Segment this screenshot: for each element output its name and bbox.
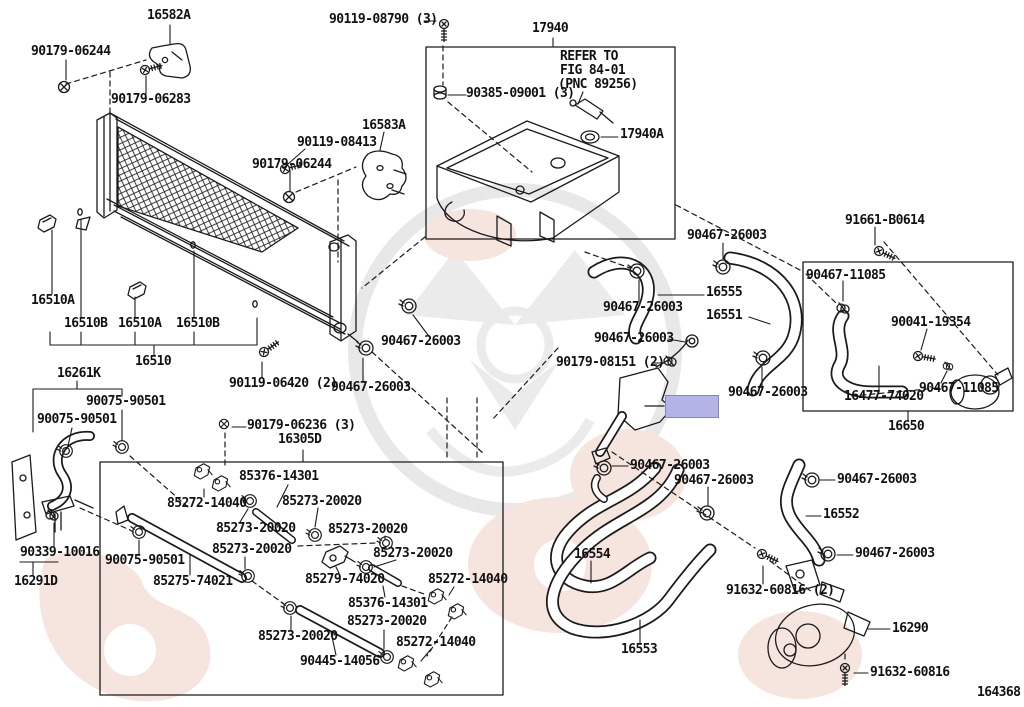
part-label[interactable]: 16510B [176, 318, 219, 330]
part-label[interactable]: 90385-09001 (3) [466, 88, 574, 100]
bolt-icon [440, 20, 449, 42]
hose-clamp-icon [113, 441, 128, 454]
grommet-bracket-icon [424, 672, 442, 687]
part-label[interactable]: 16290 [892, 623, 928, 635]
nut-icon [284, 192, 295, 203]
part-label[interactable]: 90467-11085 [806, 270, 886, 282]
part-label[interactable]: FIG 84-01 [560, 65, 625, 77]
part-label[interactable]: 16555 [706, 287, 742, 299]
part-label[interactable]: 16551 [706, 310, 742, 322]
bolt-icon [258, 338, 281, 358]
nut-icon [59, 82, 70, 93]
part-label[interactable]: 90467-26003 [594, 333, 674, 345]
part-label[interactable]: 16477-74020 [844, 391, 924, 403]
part-label[interactable]: 85272-14040 [167, 498, 247, 510]
part-label[interactable]: 90467-26003 [331, 382, 411, 394]
clip-wedge-icon [128, 282, 146, 299]
part-label[interactable]: 90179-06244 [252, 159, 332, 171]
part-label[interactable]: 90119-06420 (2) [229, 378, 337, 390]
part-label[interactable]: 16553 [621, 644, 657, 656]
part-label[interactable]: 16554 [574, 549, 610, 561]
part-label[interactable]: 90075-90501 [86, 396, 166, 408]
bolt-icon [873, 245, 897, 262]
part-label[interactable]: 85275-74021 [153, 576, 233, 588]
pin-icon [78, 209, 82, 215]
hose-clamp-icon [306, 529, 321, 542]
part-label[interactable]: 90075-90501 [37, 414, 117, 426]
part-label[interactable]: 16583A [362, 120, 405, 132]
hose-clamp-icon [697, 506, 714, 520]
part-label[interactable]: 91661-B0614 [845, 215, 925, 227]
hose-clamp-icon [378, 651, 393, 664]
grommet-bracket-icon [448, 604, 466, 619]
part-label[interactable]: 85273-20020 [373, 548, 453, 560]
part-label[interactable]: 85273-20020 [212, 544, 292, 556]
part-label[interactable]: 16291D [14, 576, 57, 588]
part-label[interactable]: 90041-19354 [891, 317, 971, 329]
bolt-icon [913, 351, 936, 364]
clip-wedge-icon [38, 215, 56, 232]
part-label[interactable]: REFER TO [560, 51, 618, 63]
part-label[interactable]: 90179-06236 (3) [247, 420, 355, 432]
part-label[interactable]: 90467-26003 [837, 474, 917, 486]
figure-number: 164368 [977, 685, 1020, 700]
part-label[interactable]: 90179-06244 [31, 46, 111, 58]
grommet-bracket-icon [428, 589, 446, 604]
part-label[interactable]: 90467-26003 [381, 336, 461, 348]
part-label[interactable]: 16510B [64, 318, 107, 330]
part-label[interactable]: 90179-06283 [111, 94, 191, 106]
part-label[interactable]: 17940A [620, 129, 663, 141]
part-label[interactable]: 16261K [57, 368, 100, 380]
part-label[interactable]: 90119-08790 (3) [329, 14, 437, 26]
parts-diagram-page: 16582A90179-0624490179-0628390119-08790 … [0, 0, 1024, 707]
hose-16552 [786, 465, 819, 560]
part-label[interactable]: 90467-26003 [674, 475, 754, 487]
part-label[interactable]: 85273-20020 [258, 631, 338, 643]
part-label[interactable]: 85272-14040 [428, 574, 508, 586]
part-label[interactable]: 90119-08413 [297, 137, 377, 149]
part-label[interactable]: 85376-14301 [239, 471, 319, 483]
part-label[interactable]: 90339-10016 [20, 547, 100, 559]
part-label[interactable]: 85273-20020 [347, 616, 427, 628]
selected-part-highlight[interactable] [665, 395, 719, 418]
part-label[interactable]: 90467-26003 [603, 302, 683, 314]
part-label[interactable]: 16510A [118, 318, 161, 330]
part-label[interactable]: 90467-26003 [630, 460, 710, 472]
part-label[interactable]: 85376-14301 [348, 598, 428, 610]
part-label[interactable]: 85273-20020 [282, 496, 362, 508]
part-label[interactable]: 90445-14056 [300, 656, 380, 668]
part-label[interactable]: 16305D [278, 434, 321, 446]
hose-clamp-icon [281, 602, 296, 615]
part-label[interactable]: 17940 [532, 23, 568, 35]
grommet-bracket-icon [194, 464, 212, 479]
part-label[interactable]: 85273-20020 [216, 523, 296, 535]
part-label[interactable]: 16582A [147, 10, 190, 22]
part-label[interactable]: 90075-90501 [105, 555, 185, 567]
hose-16551 [730, 258, 796, 390]
grommet-bracket-icon [398, 656, 416, 671]
hose-clamp-icon [753, 351, 770, 365]
part-label[interactable]: 90467-11085 [919, 383, 999, 395]
part-label[interactable]: 90179-08151 (2) [556, 357, 664, 369]
watermark [39, 190, 862, 701]
part-label[interactable]: 91632-60816 [870, 667, 950, 679]
part-label[interactable]: 90467-26003 [855, 548, 935, 560]
cap-17940A [581, 131, 599, 143]
pipe-assembly-16291D [12, 436, 93, 540]
part-label[interactable]: 16552 [823, 509, 859, 521]
part-label[interactable]: 85279-74020 [305, 574, 385, 586]
grommet-bracket-icon [212, 476, 230, 491]
part-label[interactable]: 16510 [135, 356, 171, 368]
part-label[interactable]: 90467-26003 [728, 387, 808, 399]
part-label[interactable]: 16650 [888, 421, 924, 433]
part-label[interactable]: 85273-20020 [328, 524, 408, 536]
part-label[interactable]: 90467-26003 [687, 230, 767, 242]
spacer-icon [434, 86, 446, 99]
hose-clamp-icon [713, 260, 730, 274]
pin-icon [253, 301, 257, 307]
part-label[interactable]: 85272-14040 [396, 637, 476, 649]
bracket-16582A [149, 44, 190, 78]
hose-clamp-icon [130, 526, 145, 539]
part-label[interactable]: 91632-60816 (2) [726, 585, 834, 597]
nut-icon [219, 419, 228, 428]
hose-clamp-icon [802, 473, 819, 487]
bolt-icon [756, 548, 780, 565]
clip-icon [943, 362, 953, 370]
part-label[interactable]: 16510A [31, 295, 74, 307]
